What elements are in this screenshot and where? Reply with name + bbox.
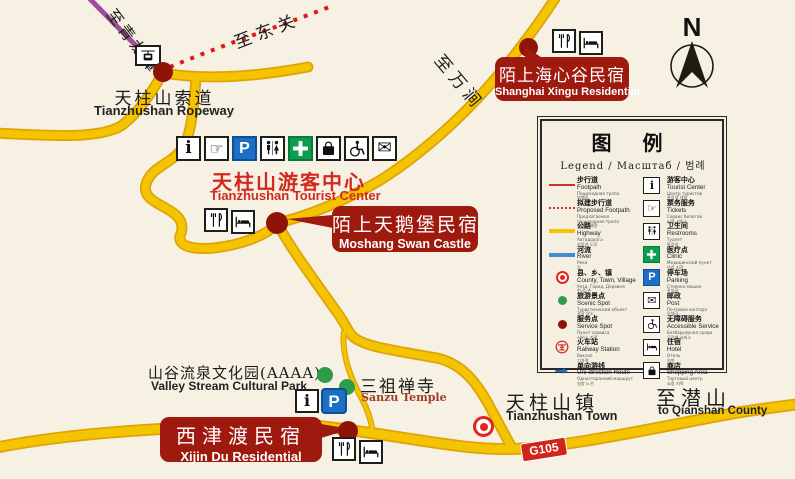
legend-row-tickets: ☞ 票务服务TicketsСервис билетов티켓 서비스 [637, 200, 719, 223]
scenic-dot-sample [547, 293, 577, 309]
legend-row-accessible: 无障碍服务Accessible ServiceБезбарьерная сред… [637, 316, 719, 339]
moshang-badge-pointer [287, 215, 333, 228]
moshang-badge: 陌上天鹅堡民宿 Moshang Swan Castle [332, 206, 478, 252]
legend-title: 图 例 [547, 127, 719, 156]
hotel-bed-icon [643, 339, 660, 356]
legend-row-railway-station: 火车站Railway StationВокзал기차역 [547, 339, 637, 362]
shanghai-xingu-badge: 陌上海心谷民宿 Shanghai Xingu Residential [495, 57, 629, 101]
sanzu-label-en: Sanzu Temple [361, 391, 447, 404]
legend-row-clinic: 医疗点ClinicМедицинский пункт의료 지점 [637, 247, 719, 270]
legend-row-uni-direction: 单向游线Uni-direction RouteОдносторонний мар… [547, 363, 637, 386]
clinic-icon [288, 136, 313, 161]
legend-row-hotel: 住宿HotelОтель숙박 [637, 339, 719, 362]
parking-icon: P [321, 388, 347, 414]
ropeway-label-en: Tianzhushan Ropeway [80, 103, 248, 118]
legend-row-proposed-footpath: 拟建步行道Proposed FootpathПредлагаемая пешех… [547, 200, 637, 223]
tickets-icon: ☞ [643, 200, 660, 217]
legend-row-highway: 公路HighwayАвтодорога자동차 도로 [547, 223, 637, 246]
info-icon: i [295, 389, 319, 413]
legend-row-scenic-spot: 旅游景点Scenic SpotТуристический объект관광 명소 [547, 293, 637, 316]
parking-icon: P [232, 136, 257, 161]
proposed-footpath-line-sample [547, 200, 577, 216]
mail-icon: ✉ [372, 136, 397, 161]
service-dot-moshang [266, 212, 288, 234]
tickets-icon: ☞ [204, 136, 229, 161]
town-label-en: Tianzhushan Town [506, 409, 617, 423]
mail-icon: ✉ [643, 292, 660, 309]
tourist-center-label-en: Tianzhushan Tourist Center [210, 188, 381, 203]
county-symbol-sample [547, 270, 577, 286]
legend-row-county: 县、乡、镇County, Town, VillageУезд, Город, Д… [547, 270, 637, 293]
hotel-bed-icon [579, 31, 603, 55]
tianzhushan-tourist-map: N 至青龙潭 至东关 至万涧 天柱山索道 Tianzhushan Ropeway… [0, 0, 795, 479]
compass: N [655, 14, 735, 96]
clinic-icon [643, 246, 660, 263]
legend-box: 图 例 Legend / Масштаб / 범례 步行道FootpathПеш… [537, 116, 727, 373]
hotel-bed-icon [359, 440, 383, 464]
legend-row-tourist-center: i 游客中心Tourist CenterЦентр туристов관광객 센터 [637, 177, 719, 200]
legend-subtitle: Legend / Масштаб / 범례 [547, 157, 719, 172]
river-line-sample [547, 247, 577, 263]
info-icon: i [643, 177, 660, 194]
service-dot-ropeway [153, 62, 173, 82]
accessible-icon [344, 136, 369, 161]
shopping-icon [316, 136, 341, 161]
legend-row-river: 河流RiverРека강 [547, 247, 637, 270]
hotel-bed-icon [231, 210, 255, 234]
highway-line-sample [547, 223, 577, 239]
footpath-line-sample [547, 177, 577, 193]
restrooms-icon [643, 223, 660, 240]
valley-label-en: Valley Stream Cultural Park [151, 379, 307, 393]
scenic-dot-valley [317, 367, 333, 383]
service-dot-sample [547, 316, 577, 332]
railway-station-icon [547, 339, 577, 355]
road-south [277, 223, 512, 448]
legend-row-service-spot: 服务点Service SpotПункт сервиса서비스 지점 [547, 316, 637, 339]
legend-row-footpath: 步行道FootpathПешеходная тропа보행로 [547, 177, 637, 200]
restaurant-icon [552, 29, 576, 53]
shopping-icon [643, 362, 660, 379]
qianshan-label-en: to Qianshan County [658, 405, 767, 417]
info-icon: i [176, 136, 201, 161]
legend-row-parking: P 停车场ParkingСтоянка машин주차장 [637, 270, 719, 293]
parking-icon: P [643, 269, 660, 286]
compass-n-label: N [683, 14, 702, 42]
accessible-icon [643, 316, 660, 333]
one-way-arrow-icon [547, 363, 577, 379]
restaurant-icon [332, 437, 356, 461]
xijin-badge: 西津渡民宿 Xijin Du Residential [160, 417, 322, 462]
restrooms-icon [260, 136, 285, 161]
restaurant-icon [204, 208, 228, 232]
legend-row-shopping: 商店Shopping AreaТорговый центр쇼핑 지역 [637, 363, 719, 386]
legend-row-restrooms: 卫生间RestroomsТуалет화장실 [637, 223, 719, 246]
legend-row-post: ✉ 邮政PostПочтовая контора우체국 [637, 293, 719, 316]
town-symbol [473, 416, 494, 437]
